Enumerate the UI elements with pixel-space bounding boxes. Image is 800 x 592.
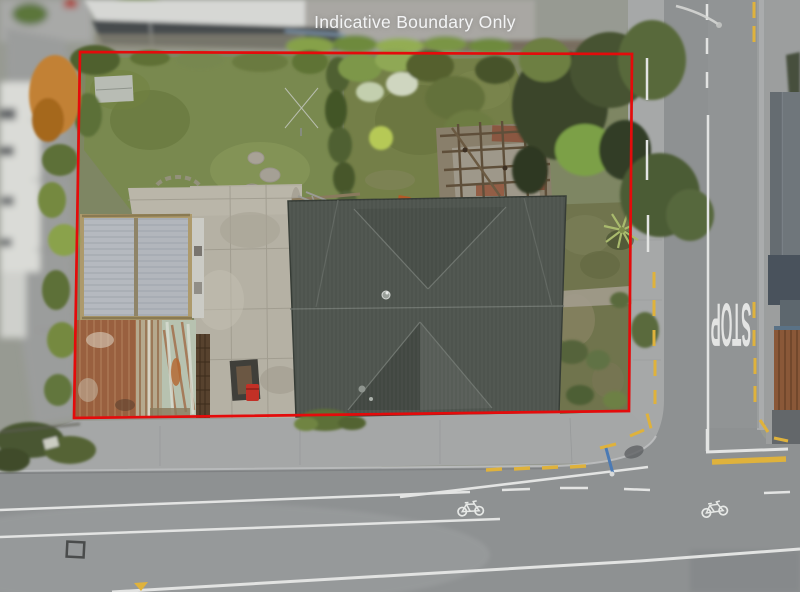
stop-road-marking: STOP [711, 290, 752, 359]
disclaimer-text: Indicative Boundary Only [0, 12, 800, 33]
photo-canvas: STOP [0, 0, 800, 592]
rusty-shed [73, 320, 210, 418]
rust-fence [774, 330, 800, 410]
aerial-property-photo: STOP Indicative Boundary Only [0, 0, 800, 592]
edge-line-dashes [647, 58, 648, 252]
red-wheelie-bin [246, 384, 259, 401]
parked-car [64, 0, 77, 8]
yellow-bar [712, 459, 786, 462]
garage [80, 214, 204, 320]
roof-chimney-vent [382, 291, 390, 299]
roof-skylight [359, 386, 366, 393]
